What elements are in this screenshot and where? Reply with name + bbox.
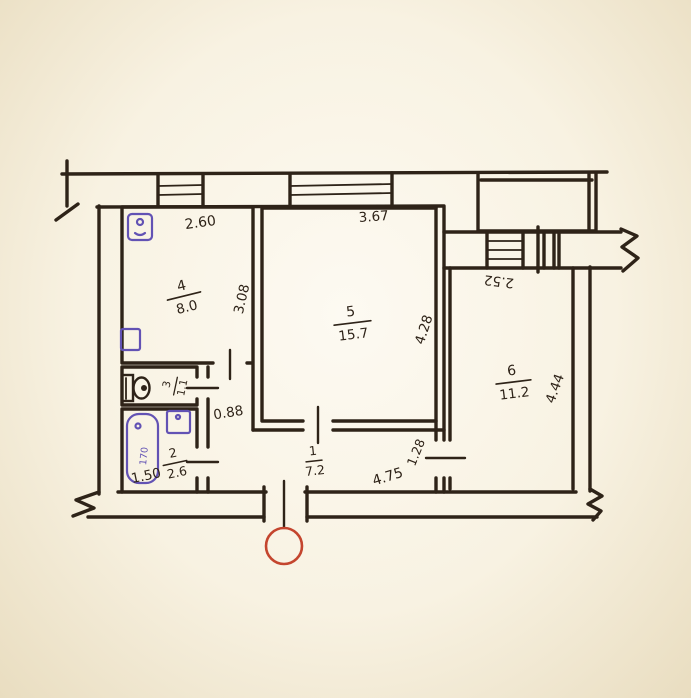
kitchen-number: 4 [175, 277, 188, 295]
living-area: 15.7 [338, 325, 370, 345]
top-left-axis-mark [56, 161, 78, 220]
dim-living-width: 3.67 [358, 208, 389, 226]
kitchen-area: 8.0 [175, 297, 200, 318]
bedroom-window-glazing [487, 241, 523, 259]
dim-kitchen-width: 2.60 [184, 213, 217, 233]
toilet-icon [122, 375, 150, 401]
dim-bathroom-width: 1.50 [130, 465, 163, 487]
entry-circle-icon [266, 528, 302, 564]
room-label-bedroom: 6 11.2 [494, 361, 533, 404]
room-label-living: 5 15.7 [332, 302, 373, 345]
dim-hall-length: 4.75 [371, 465, 405, 489]
living-window-jambs [290, 173, 392, 206]
dim-kitchen-depth: 3.08 [231, 283, 253, 316]
bathroom-number: 2 [167, 445, 178, 461]
living-window-glazing [290, 184, 392, 195]
kitchen-window-glazing [158, 185, 203, 195]
entrance-jambs [264, 487, 307, 521]
hall-area: 7.2 [304, 462, 325, 479]
room-label-kitchen: 4 8.0 [163, 274, 205, 319]
bedroom-area: 11.2 [499, 384, 531, 404]
dim-hall-width: 0.88 [212, 403, 244, 424]
floor-plan-canvas: 170 4 8.0 5 15.7 6 11.2 3 1.1 2 [0, 0, 691, 698]
room-label-hall: 1 7.2 [302, 442, 325, 479]
outer-top-wall [62, 172, 607, 174]
bottom-left-break-mark [73, 492, 99, 516]
wc-number: 3 [161, 380, 174, 389]
dim-living-depth: 4.28 [412, 313, 437, 347]
dim-bedroom-width: 2.52 [483, 271, 515, 291]
room-labels: 4 8.0 5 15.7 6 11.2 3 1.1 2 2.6 1 7.2 [159, 274, 533, 482]
hall-number: 1 [308, 443, 317, 459]
bedroom-top-wall-band [444, 232, 621, 268]
kitchen-window-jambs [158, 174, 203, 206]
room-label-wc: 3 1.1 [159, 374, 190, 397]
fixtures: 170 [121, 214, 190, 483]
wc-area: 1.1 [175, 378, 190, 397]
kitchen-sink-icon [121, 329, 140, 350]
bedroom-number: 6 [506, 363, 517, 380]
balcony-outline [478, 173, 596, 231]
right-wall-break-mark [621, 229, 638, 271]
dim-bedroom-depth: 4.44 [543, 372, 568, 406]
bathroom-area: 2.6 [166, 463, 189, 482]
right-wall-partitions [538, 227, 559, 272]
living-number: 5 [345, 304, 356, 321]
bathtub-length-label: 170 [138, 447, 151, 466]
entrance-marker [266, 481, 302, 564]
washbasin-icon [167, 411, 190, 433]
floor-plan-sketch: 170 4 8.0 5 15.7 6 11.2 3 1.1 2 [0, 0, 691, 698]
room-label-bathroom: 2 2.6 [160, 443, 191, 482]
stove-icon [128, 214, 152, 240]
dim-bedroom-entry: 1.28 [404, 437, 428, 468]
